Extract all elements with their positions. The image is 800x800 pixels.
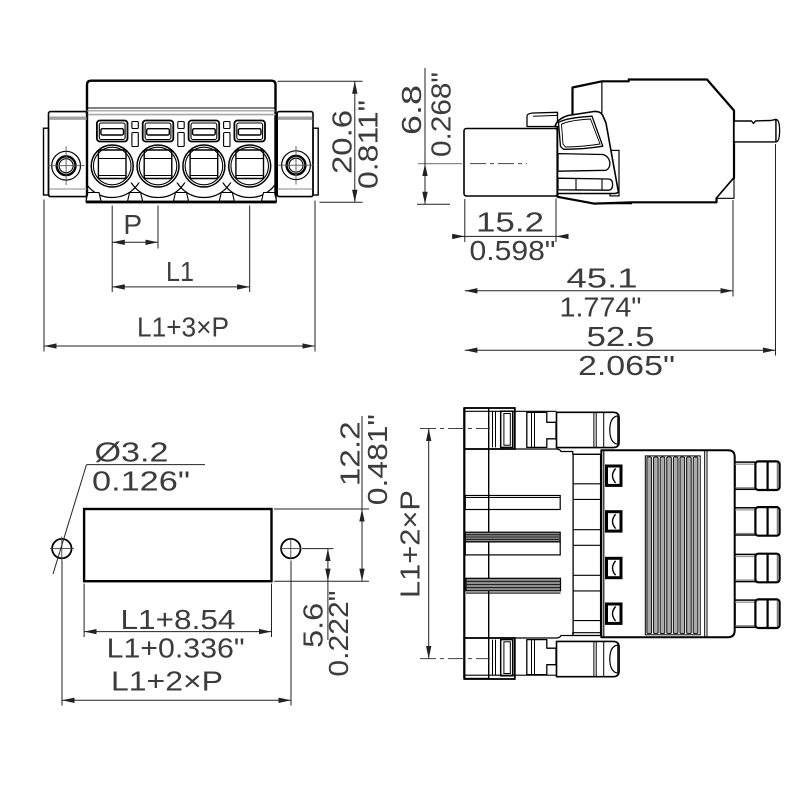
svg-text:Ø3.2: Ø3.2 [95,437,169,468]
svg-text:0.481": 0.481" [362,414,393,505]
svg-text:P: P [123,209,142,240]
svg-text:6.8: 6.8 [396,85,427,135]
svg-text:12.2: 12.2 [335,421,366,486]
svg-text:L1+2×P: L1+2×P [111,666,223,697]
svg-text:0.126": 0.126" [92,466,190,497]
svg-text:L1+0.336": L1+0.336" [107,633,245,664]
svg-text:L1: L1 [166,256,194,287]
svg-text:45.1: 45.1 [567,262,638,293]
svg-text:0.811": 0.811" [353,100,384,189]
svg-text:0.598": 0.598" [470,235,556,266]
svg-text:1.774": 1.774" [560,292,642,323]
svg-text:L1+3×P: L1+3×P [137,312,229,343]
svg-text:52.5: 52.5 [587,321,655,352]
svg-text:15.2: 15.2 [476,207,544,238]
svg-text:2.065": 2.065" [578,350,675,381]
svg-text:0.268": 0.268" [426,72,457,157]
svg-text:L1+8.54: L1+8.54 [121,604,236,635]
svg-text:0.222": 0.222" [323,591,354,677]
svg-text:L1+2×P: L1+2×P [395,490,426,598]
